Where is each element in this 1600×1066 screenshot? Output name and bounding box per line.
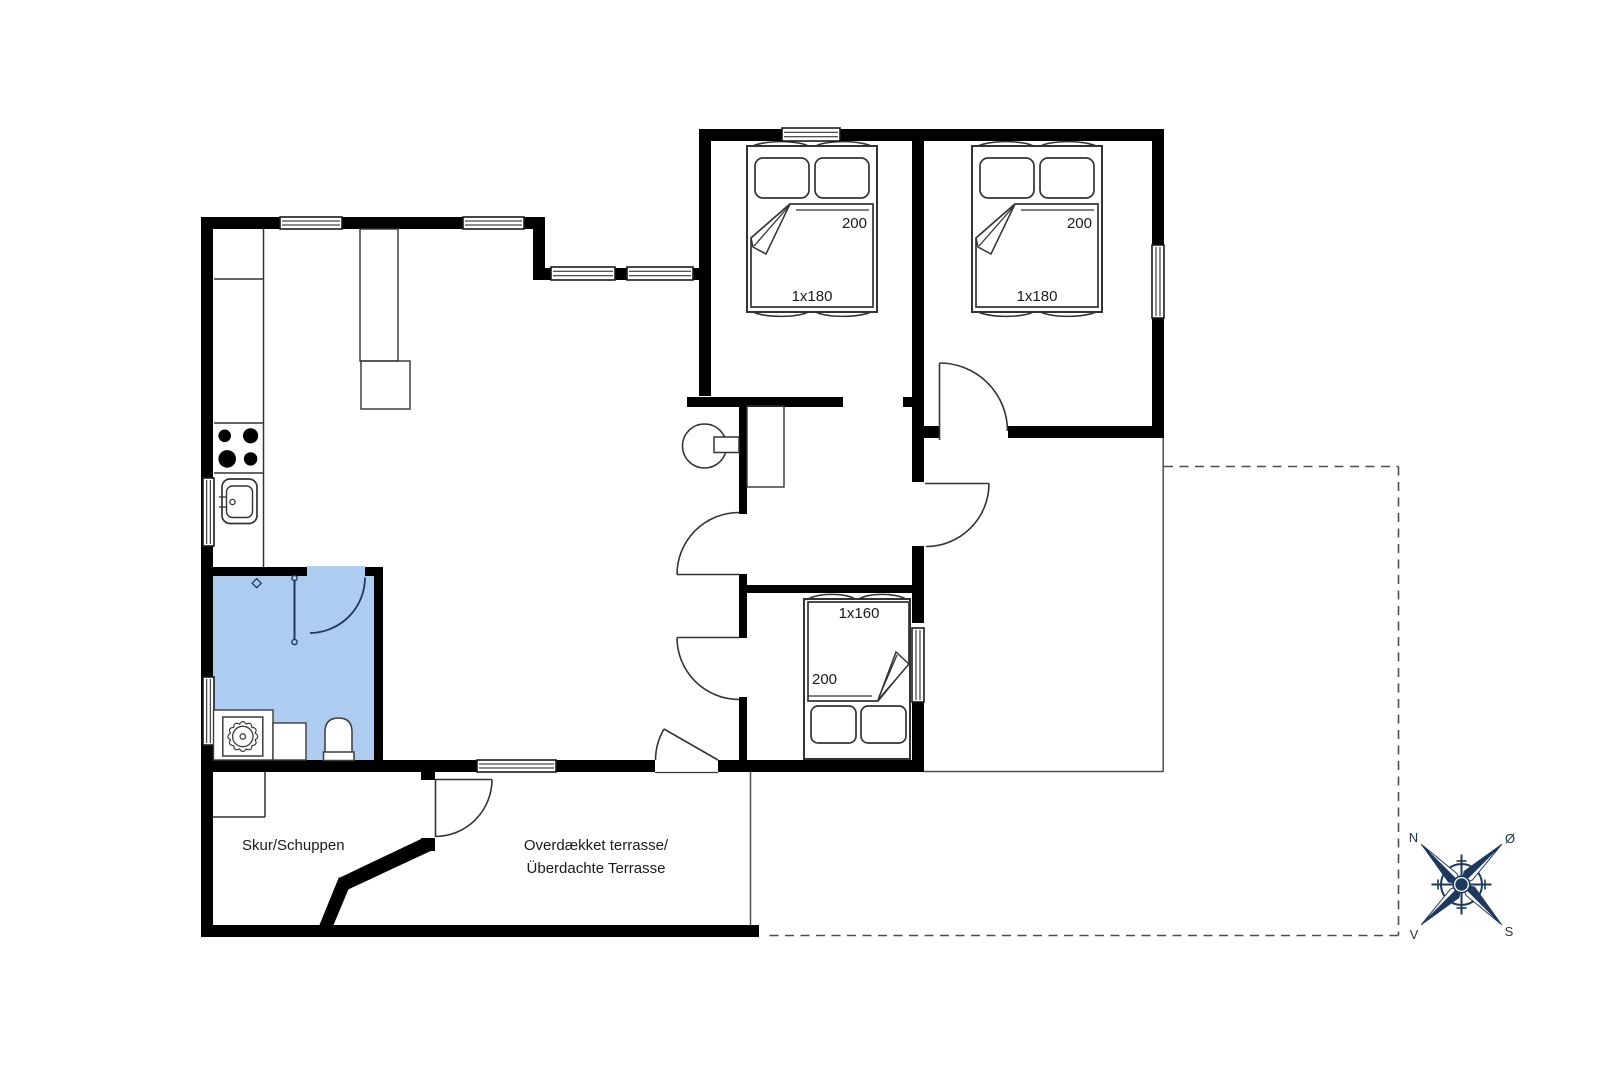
- svg-text:200: 200: [812, 671, 837, 688]
- svg-text:Overdækket terrasse/: Overdækket terrasse/: [524, 837, 669, 854]
- svg-text:Skur/Schuppen: Skur/Schuppen: [242, 837, 345, 854]
- svg-text:Überdachte Terrasse: Überdachte Terrasse: [527, 859, 666, 877]
- svg-text:1x180: 1x180: [792, 288, 833, 305]
- svg-text:200: 200: [842, 215, 867, 232]
- svg-text:1x160: 1x160: [839, 605, 880, 622]
- svg-text:N: N: [1409, 830, 1418, 845]
- svg-text:200: 200: [1067, 215, 1092, 232]
- svg-text:S: S: [1505, 924, 1514, 939]
- svg-text:V: V: [1410, 927, 1419, 942]
- svg-text:1x180: 1x180: [1017, 288, 1058, 305]
- svg-text:Ø: Ø: [1505, 831, 1515, 846]
